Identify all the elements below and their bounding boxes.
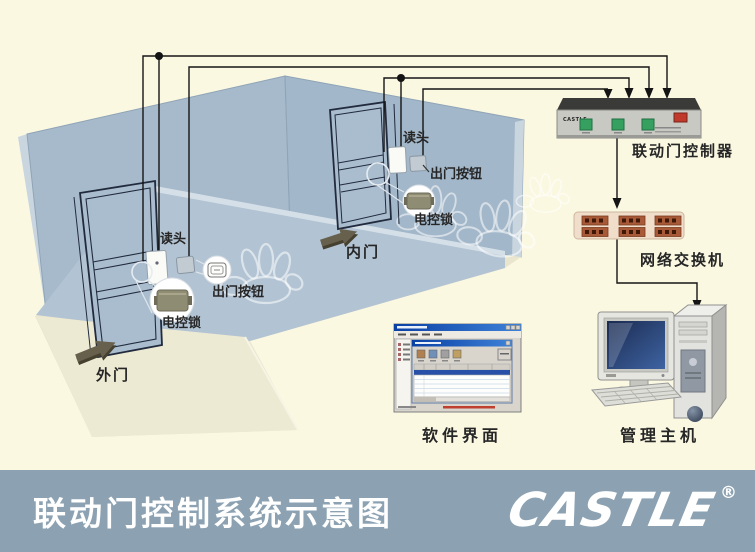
schematic-page: CASTLE 联动门控制器 (0, 0, 755, 552)
tower-panel (681, 350, 705, 392)
registered-mark-icon: ® (720, 483, 737, 503)
brand-logo: CASTLE ® (509, 481, 737, 541)
outer-button-label: 出门按钮 (212, 284, 264, 300)
controller-label: 联动门控制器 (632, 142, 734, 160)
controller-button-1 (580, 119, 592, 130)
inner-reader-label: 读头 (403, 130, 429, 146)
host-label: 管理主机 (620, 426, 700, 445)
inner-lock-label: 电控锁 (414, 212, 453, 228)
network-switch (574, 212, 684, 239)
inner-card-reader (388, 147, 406, 174)
outer-electric-lock (157, 290, 188, 311)
outer-lock-label: 电控锁 (162, 315, 201, 331)
outer-door-label: 外门 (95, 366, 130, 384)
network-switch-label: 网络交换机 (640, 251, 725, 269)
brand-wordmark: CASTLE (503, 481, 721, 541)
controller-power-switch (674, 113, 687, 122)
diagram-canvas: CASTLE 联动门控制器 (0, 0, 755, 470)
outer-reader-label: 读头 (160, 231, 186, 247)
inner-button-label: 出门按钮 (430, 166, 482, 182)
inner-door-label: 内门 (346, 243, 380, 261)
footer-bar: 联动门控制系统示意图 CASTLE ® (0, 470, 755, 552)
software-window (394, 324, 521, 412)
controller-button-3 (642, 119, 654, 130)
tower-ball (687, 406, 703, 422)
tower-side (712, 305, 726, 418)
controller-button-2 (612, 119, 624, 130)
management-host (592, 305, 726, 422)
page-title: 联动门控制系统示意图 (33, 487, 393, 535)
outer-reader-led (155, 261, 158, 264)
door-controller: CASTLE (557, 98, 701, 138)
software-label: 软件界面 (422, 426, 502, 445)
outer-exit-button (176, 256, 195, 274)
software-status-text (443, 406, 495, 409)
inner-exit-button (410, 155, 427, 171)
